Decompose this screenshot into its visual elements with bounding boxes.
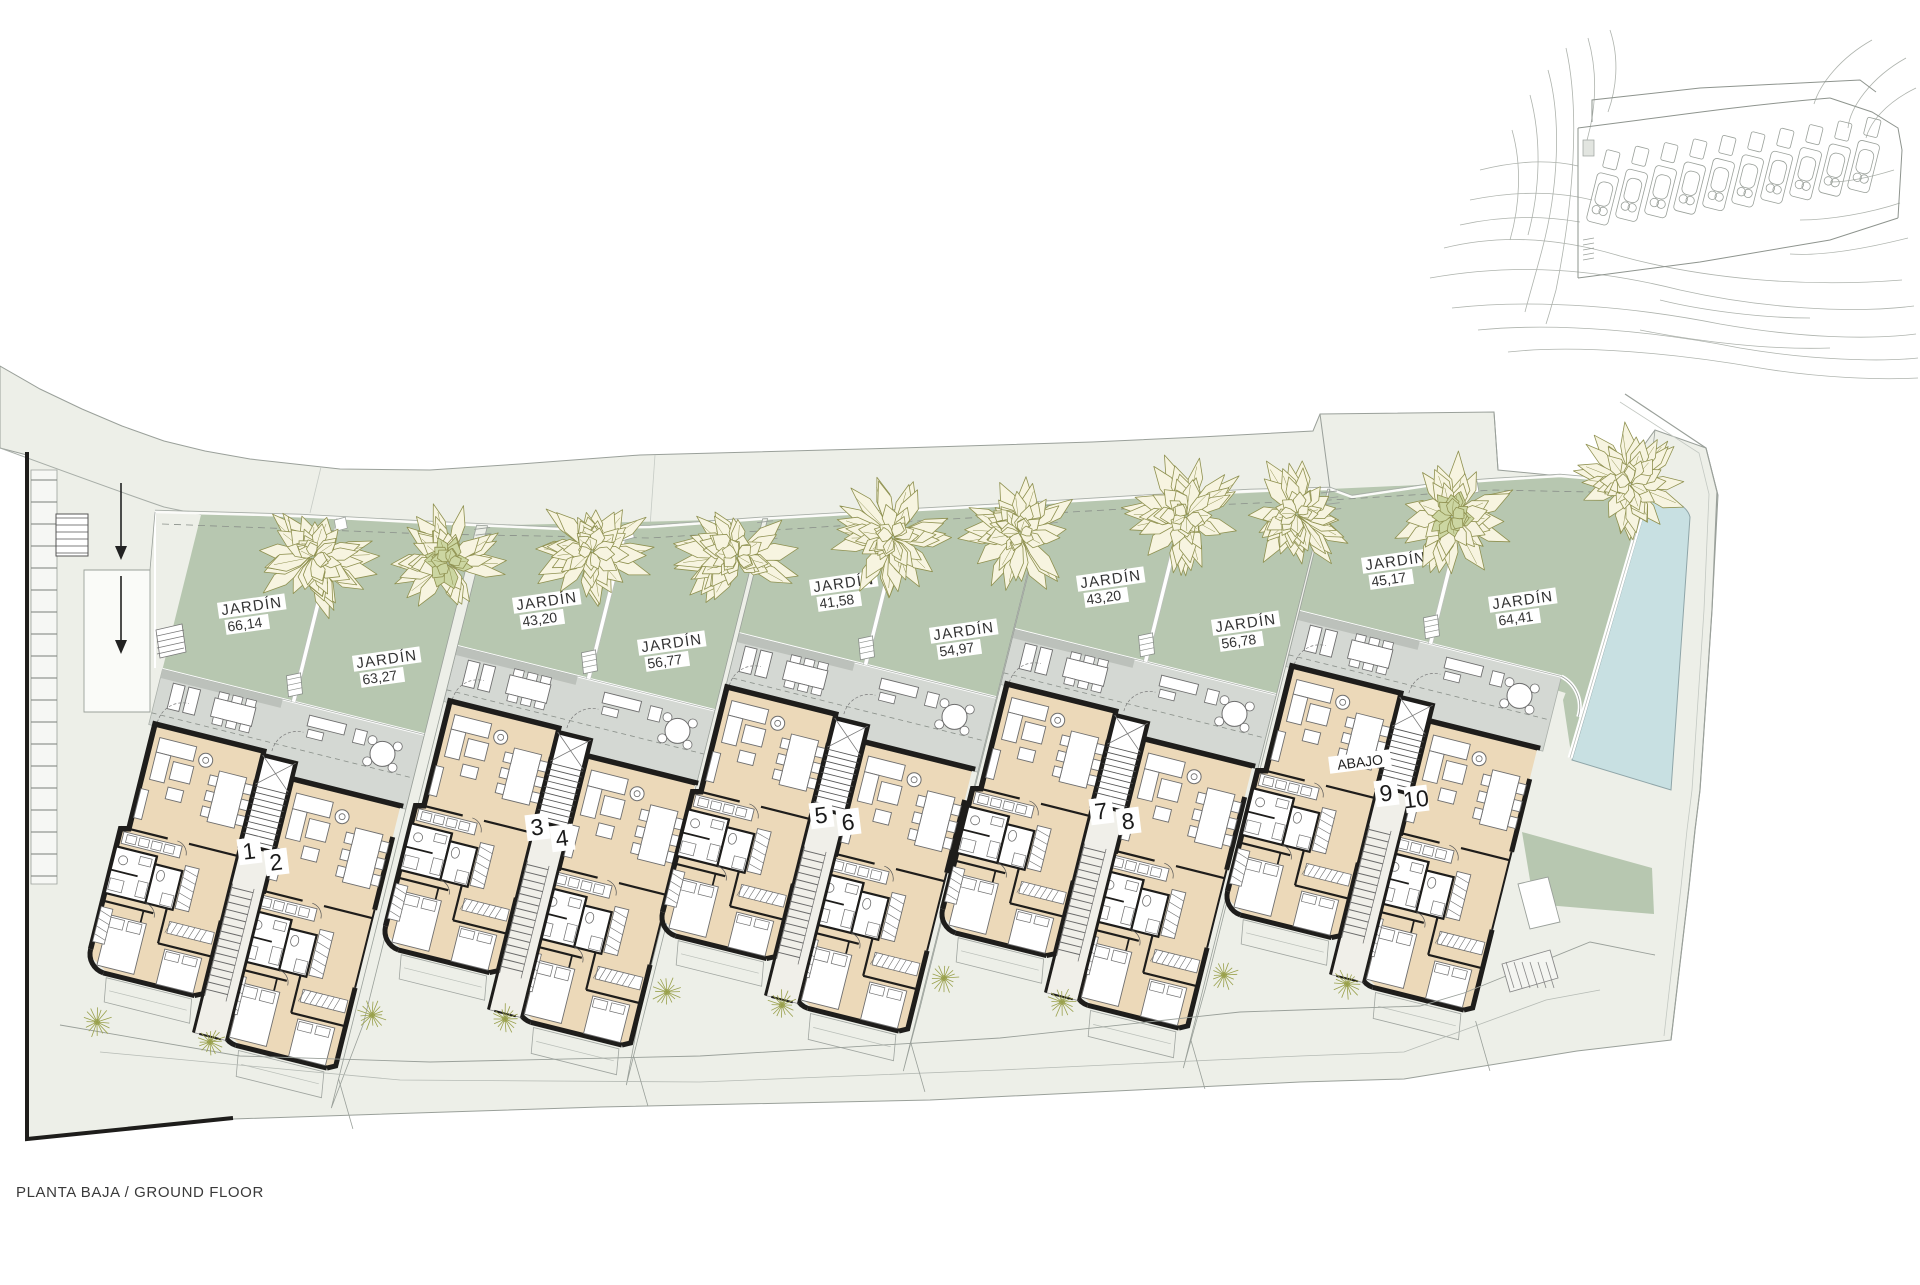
svg-text:10: 10 bbox=[1402, 785, 1431, 814]
svg-text:PLANTA BAJA / GROUND FLOOR: PLANTA BAJA / GROUND FLOOR bbox=[16, 1184, 264, 1201]
